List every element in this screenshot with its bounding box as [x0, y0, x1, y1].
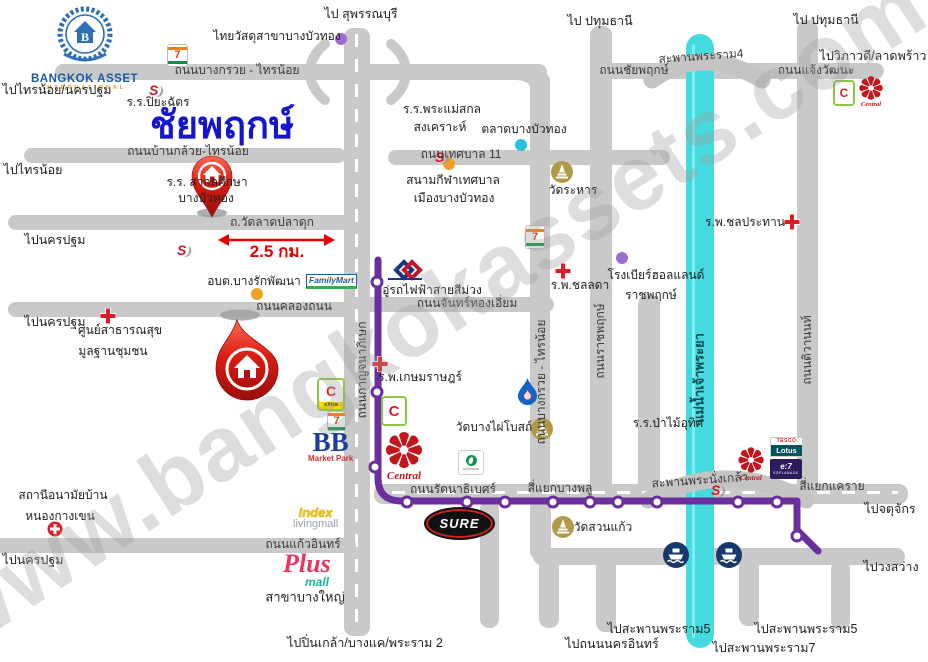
sarasas-school-icon: S — [146, 82, 164, 100]
poi-sakolsuksa-1: ร.ร. สากลศึกษา — [166, 176, 247, 190]
ferry-pier-icon — [716, 542, 743, 569]
distance-arrow — [218, 234, 335, 246]
plus-text: Plus — [283, 549, 331, 578]
sarasas-school-icon: S — [432, 149, 450, 167]
mrt-station — [791, 530, 804, 543]
hospital-cross-icon — [784, 214, 800, 230]
road-chaiyapruek-chaengwattana — [592, 63, 884, 79]
river-chaophraya-band — [686, 34, 714, 648]
central-name: Central — [861, 101, 881, 108]
hospital-cross-icon — [372, 356, 388, 372]
distance-label: 2.5 กม. — [250, 242, 305, 262]
road-stub-s1 — [539, 558, 559, 628]
temple-icon — [552, 516, 575, 539]
river-highlight — [692, 44, 695, 638]
road-tiwanon — [797, 20, 818, 498]
poi-wat-bangphai: วัดบางไผ่โบสถ์ — [456, 421, 532, 435]
bigc-extra-band: eXtra — [319, 402, 343, 409]
dir-nakhon-in: ไปถนนนครอินทร์ — [565, 637, 659, 651]
esplanade-logo: e:7 ESPLANADE — [770, 459, 802, 479]
dot-obt-bangrak — [251, 288, 263, 300]
brand-emblem: B — [54, 6, 116, 68]
dir-rama7: ไปสะพานพระราม7 — [713, 641, 816, 655]
road-stub-s2 — [596, 558, 616, 632]
central-name: Central — [740, 474, 762, 482]
dot-beer-holland — [616, 252, 628, 264]
tops-leaf-icon — [466, 455, 477, 466]
ferry-pier-icon — [663, 542, 690, 569]
central-flower — [384, 430, 424, 470]
seven-glyph: 7 — [532, 232, 538, 243]
road-ratchapruek — [590, 26, 612, 492]
poi-anamai-1: สถานีอนามัยบ้าน — [18, 489, 107, 503]
esplanade-mark: e:7 — [770, 463, 802, 471]
road-bangplu-south — [530, 498, 551, 560]
tops-line — [463, 468, 479, 470]
central-flower — [737, 446, 765, 474]
dir-suphanburi: ไป สุพรรณบุรี — [324, 7, 397, 21]
tesco-text: TESCO — [771, 438, 802, 445]
bigc-c: C — [835, 82, 853, 104]
central-name: Central — [387, 470, 421, 482]
tops-market-logo — [458, 450, 484, 475]
road-bankluai-sainoi — [24, 148, 346, 163]
location-pin-small — [192, 156, 232, 218]
poi-wat-suankaew: วัดสวนแก้ว — [574, 521, 633, 535]
poi-phramaesakol-2: สงเคราะห์ — [414, 121, 467, 135]
sarasas-school-icon: S — [708, 482, 726, 500]
index-livingmall-logo: Index livingmall — [293, 506, 338, 530]
sure-logo: SURE — [424, 507, 495, 540]
svg-text:B: B — [80, 30, 88, 44]
sure-text: SURE — [439, 516, 479, 531]
road-kanchanaphisek-dashes — [355, 34, 358, 630]
dir-nakhonpathom-3: ไปนครปฐม — [3, 553, 64, 567]
bigc-c: C — [383, 398, 405, 424]
mrt-logo — [386, 258, 424, 282]
tesco-lotus-logo: TESCO Lotus — [770, 437, 803, 457]
bb-market-park-logo: BB Market Park — [308, 430, 353, 463]
brand-sub: INTERNATIONAL — [22, 85, 147, 91]
poi-thaiwatsadu: ไทยวัสดุสาขาบางบัวทอง — [213, 30, 340, 44]
seven-glyph: 7 — [333, 416, 339, 427]
road-chanthong-iam — [362, 297, 554, 312]
bigc-extra-icon: C eXtra — [317, 378, 345, 411]
bigc-icon: C — [833, 80, 855, 106]
map-canvas: B BANGKOK ASSET INTERNATIONAL 7 7 7 S S … — [0, 0, 928, 662]
road-tesaban11 — [388, 150, 670, 165]
poi-chonprathan-hospital: ร.พ.ชลประทาน — [705, 216, 785, 230]
lotus-text: Lotus — [771, 445, 802, 456]
location-pin-large — [216, 310, 278, 401]
road-stub-s4 — [831, 560, 850, 630]
bb-text: BB — [308, 430, 353, 454]
poi-sakolsuksa-2: บางบัวทอง — [178, 192, 234, 206]
seven-eleven-icon: 7 — [167, 44, 188, 67]
mrt-station — [371, 276, 384, 289]
plus-sub-text: mall — [305, 575, 329, 589]
central-logo: Central — [380, 430, 428, 482]
brand-name: BANGKOK ASSET — [22, 73, 147, 85]
road-rattanathibet — [374, 484, 908, 504]
hospital-cross-icon — [555, 263, 571, 279]
seven-stripe2 — [526, 243, 544, 246]
central-logo: Central — [735, 446, 767, 482]
temple-icon — [531, 418, 554, 441]
central-logo: Central — [856, 75, 886, 108]
esplanade-text: ESPLANADE — [770, 471, 802, 476]
temple-icon — [551, 161, 574, 184]
dir-sainoi: ไปไทรน้อย — [4, 163, 63, 177]
seven-stripe2 — [168, 61, 187, 64]
familymart-logo: FamilyMart — [306, 274, 357, 289]
poi-stadium-1: สนามกีฬาเทศบาล — [406, 174, 500, 188]
poi-health-center-2: มูลฐานชุมชน — [78, 345, 147, 359]
project-title: ชัยพฤกษ์ — [150, 105, 294, 149]
poi-plus-branch: สาขาบางใหญ่ — [265, 591, 344, 606]
road-klongthanon — [8, 302, 352, 317]
plus-mall-logo: Plus mall — [283, 552, 331, 590]
bigc-icon: C — [381, 396, 407, 426]
road-wat-ladpladuk — [8, 215, 352, 230]
hospital-cross-icon — [100, 308, 116, 324]
poi-stadium-2: เมืองบางบัวทอง — [414, 192, 495, 206]
poi-kasemrad-hospital: ร.พ.เกษมราษฎร์ — [378, 371, 462, 385]
poi-mrt-depot: อู่รถไฟฟ้าสายสีม่วง — [382, 284, 482, 298]
index-sub-text: livingmall — [293, 519, 338, 530]
poi-health-center-1: ศูนย์สาธารณสุข — [78, 324, 162, 338]
poi-phramaesakol-1: ร.ร.พระแม่สกล — [403, 103, 481, 117]
bb-sub-text: Market Park — [308, 454, 353, 463]
sarasas-school-icon: S — [174, 242, 192, 260]
dir-pinklao: ไปปิ่นเกล้า/บางแค/พระราม 2 — [287, 636, 443, 650]
dir-nakhonpathom-1: ไปนครปฐม — [25, 233, 86, 247]
road-rattanathibet-dashes — [392, 491, 898, 494]
poi-talad-bangbuathong: ตลาดบางบัวทอง — [481, 123, 566, 137]
central-flower — [858, 75, 884, 101]
bigc-c: C — [319, 380, 343, 402]
road-minor-c — [638, 295, 660, 492]
brand-logo: B BANGKOK ASSET INTERNATIONAL — [22, 6, 147, 91]
health-station-icon — [47, 521, 63, 537]
seven-glyph: 7 — [174, 50, 180, 61]
poi-obt-bangrak: อบต.บางรักพัฒนา — [207, 275, 301, 289]
seven-eleven-icon: 7 — [525, 225, 545, 249]
ptt-station-icon — [518, 377, 537, 406]
dir-vibhavadi: ไปวิภาวดี/ลาดพร้าว — [820, 49, 927, 63]
